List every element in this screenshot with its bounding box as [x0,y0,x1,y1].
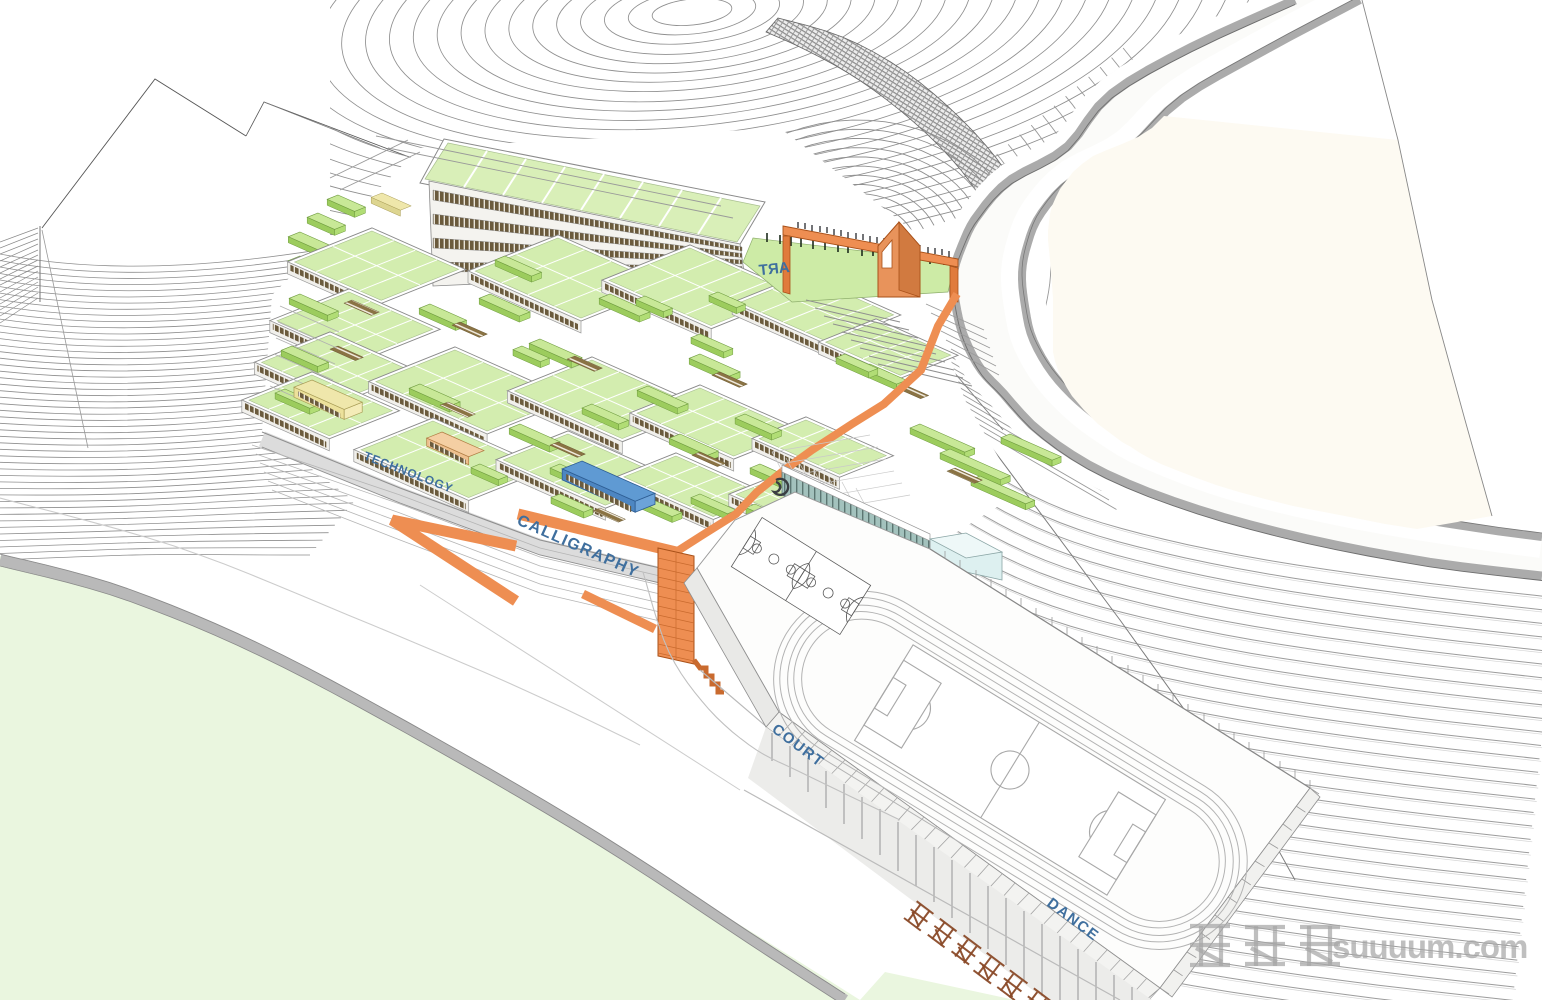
svg-text:suuuum.com: suuuum.com [1332,928,1527,965]
svg-text:ART: ART [758,259,790,279]
